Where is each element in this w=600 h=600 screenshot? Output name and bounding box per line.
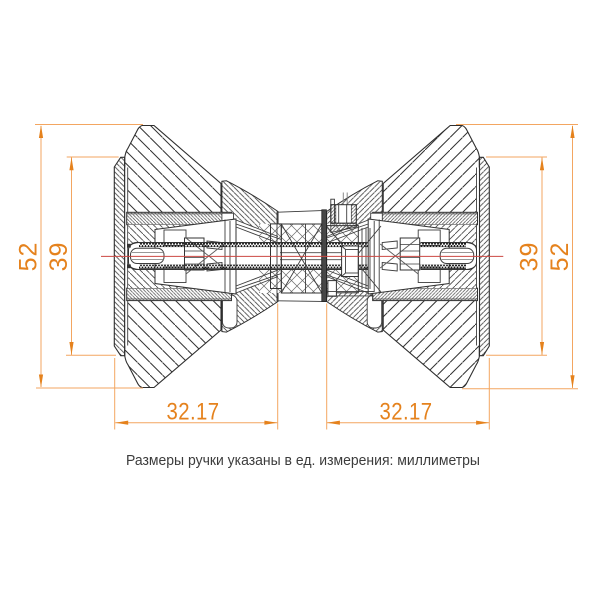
svg-text:32.17: 32.17: [167, 399, 220, 426]
svg-text:32.17: 32.17: [380, 399, 433, 426]
svg-text:52: 52: [546, 242, 574, 272]
svg-text:39: 39: [45, 242, 73, 272]
svg-text:52: 52: [15, 242, 43, 272]
svg-text:Размеры ручки указаны в ед. из: Размеры ручки указаны в ед. измерения: м…: [126, 452, 480, 469]
svg-text:39: 39: [516, 242, 544, 272]
